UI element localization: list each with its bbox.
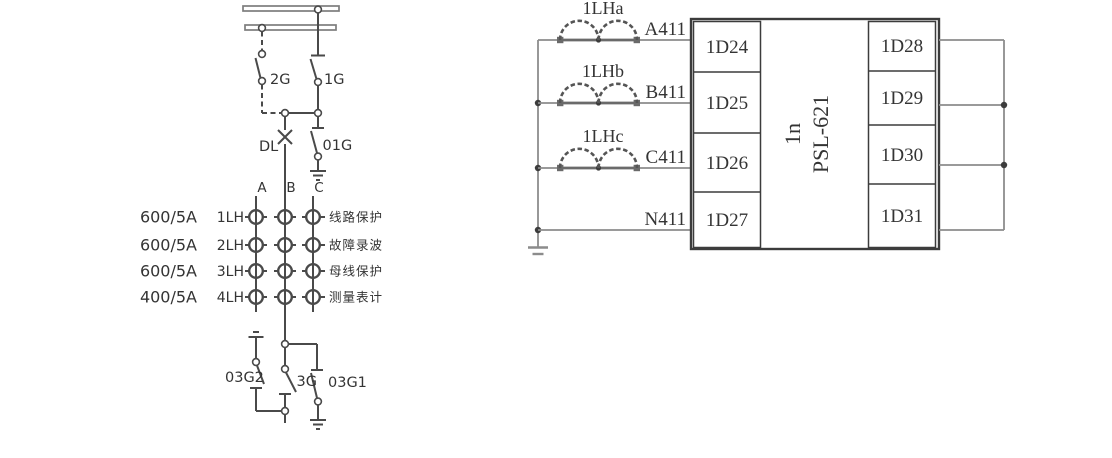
ct-1lhc <box>557 149 640 171</box>
ct-purpose-label: 线路保护 <box>329 210 383 225</box>
busbar-1 <box>243 6 339 11</box>
phase-c-label: C <box>314 180 323 196</box>
terminal-1d30: 1D30 <box>881 145 923 166</box>
terminal-1d29: 1D29 <box>881 88 923 109</box>
ct-name-label: 2LH <box>217 238 244 254</box>
ct-name-label: 3LH <box>217 264 244 280</box>
ct-name-label: 1LH <box>217 210 244 226</box>
wire-b411-label: B411 <box>646 82 686 103</box>
ct-ratio-label: 600/5A <box>140 262 197 281</box>
ct-winding-icon <box>560 21 598 40</box>
relay-model-label: PSL-621 <box>808 95 833 173</box>
ground-icon <box>310 420 326 429</box>
earth-switch-01g-label: 01G <box>323 138 353 154</box>
terminal-1d31: 1D31 <box>881 206 923 227</box>
primary-one-line-diagram: 1G 2G <box>0 0 460 458</box>
earth-switch-03g2-label: 03G2 <box>225 370 264 386</box>
disconnector-1g-label: 1G <box>324 72 344 88</box>
ct-1lhc-label: 1LHc <box>583 126 624 146</box>
junction-dot <box>1001 102 1007 108</box>
phase-b-label: B <box>286 180 295 196</box>
ct-1lha <box>557 21 640 43</box>
breaker-x-icon <box>278 130 292 144</box>
disconnector-1g <box>311 6 326 109</box>
phase-a-label: A <box>257 180 267 196</box>
ct-1lhb-label: 1LHb <box>582 61 624 81</box>
schematic-page: 1G 2G <box>0 0 1112 458</box>
wire-a411-label: A411 <box>644 19 686 40</box>
ct-name-label: 4LH <box>217 290 244 306</box>
ct-purpose-label: 故障录波 <box>329 238 383 253</box>
ground-icon <box>249 332 264 337</box>
terminal-1d27: 1D27 <box>706 210 748 231</box>
ct-purpose-label: 测量表计 <box>329 290 383 305</box>
breaker-dl-label: DL <box>259 139 278 155</box>
ct-rows: 600/5A 1LH 线路保护 600/5A 2LH 故障录波 <box>140 208 383 307</box>
junction-row <box>282 110 322 117</box>
terminal-1d25: 1D25 <box>706 93 748 114</box>
ct-winding-icon <box>599 21 637 40</box>
disconnector-3g <box>279 348 296 408</box>
junction-dot <box>1001 162 1007 168</box>
disconnector-3g-label: 3G <box>297 374 317 390</box>
ct-1lhb <box>557 84 640 106</box>
ct-purpose-label: 母线保护 <box>329 264 383 279</box>
ct-secondary-wiring-diagram: 1LHa 1LHb 1LHc A411 B411 C411 N411 <box>500 0 1112 300</box>
ground-icon <box>528 248 548 255</box>
earth-switch-03g1-label: 03G1 <box>328 375 367 391</box>
relay-id-label: 1n <box>780 123 805 145</box>
secondary-neutral-bus <box>528 40 548 254</box>
ct-winding-icon <box>560 84 598 103</box>
ct-winding-icon <box>599 149 637 168</box>
ground-icon <box>310 171 326 180</box>
disconnector-2g-label: 2G <box>270 72 290 88</box>
terminal-1d26: 1D26 <box>706 153 748 174</box>
ct-winding-icon <box>599 84 637 103</box>
terminal-1d28: 1D28 <box>881 36 923 57</box>
ct-1lha-label: 1LHa <box>583 0 624 18</box>
wire-c411-label: C411 <box>646 147 686 168</box>
terminal-1d24: 1D24 <box>706 37 749 58</box>
output-shorting-bus <box>939 40 1004 230</box>
ct-winding-icon <box>560 149 598 168</box>
breaker-dl <box>278 117 292 345</box>
wire-n411-label: N411 <box>644 209 686 230</box>
ct-ratio-label: 600/5A <box>140 236 197 255</box>
ct-ratio-label: 400/5A <box>140 288 197 307</box>
disconnector-2g <box>256 25 282 113</box>
ct-ratio-label: 600/5A <box>140 208 197 227</box>
